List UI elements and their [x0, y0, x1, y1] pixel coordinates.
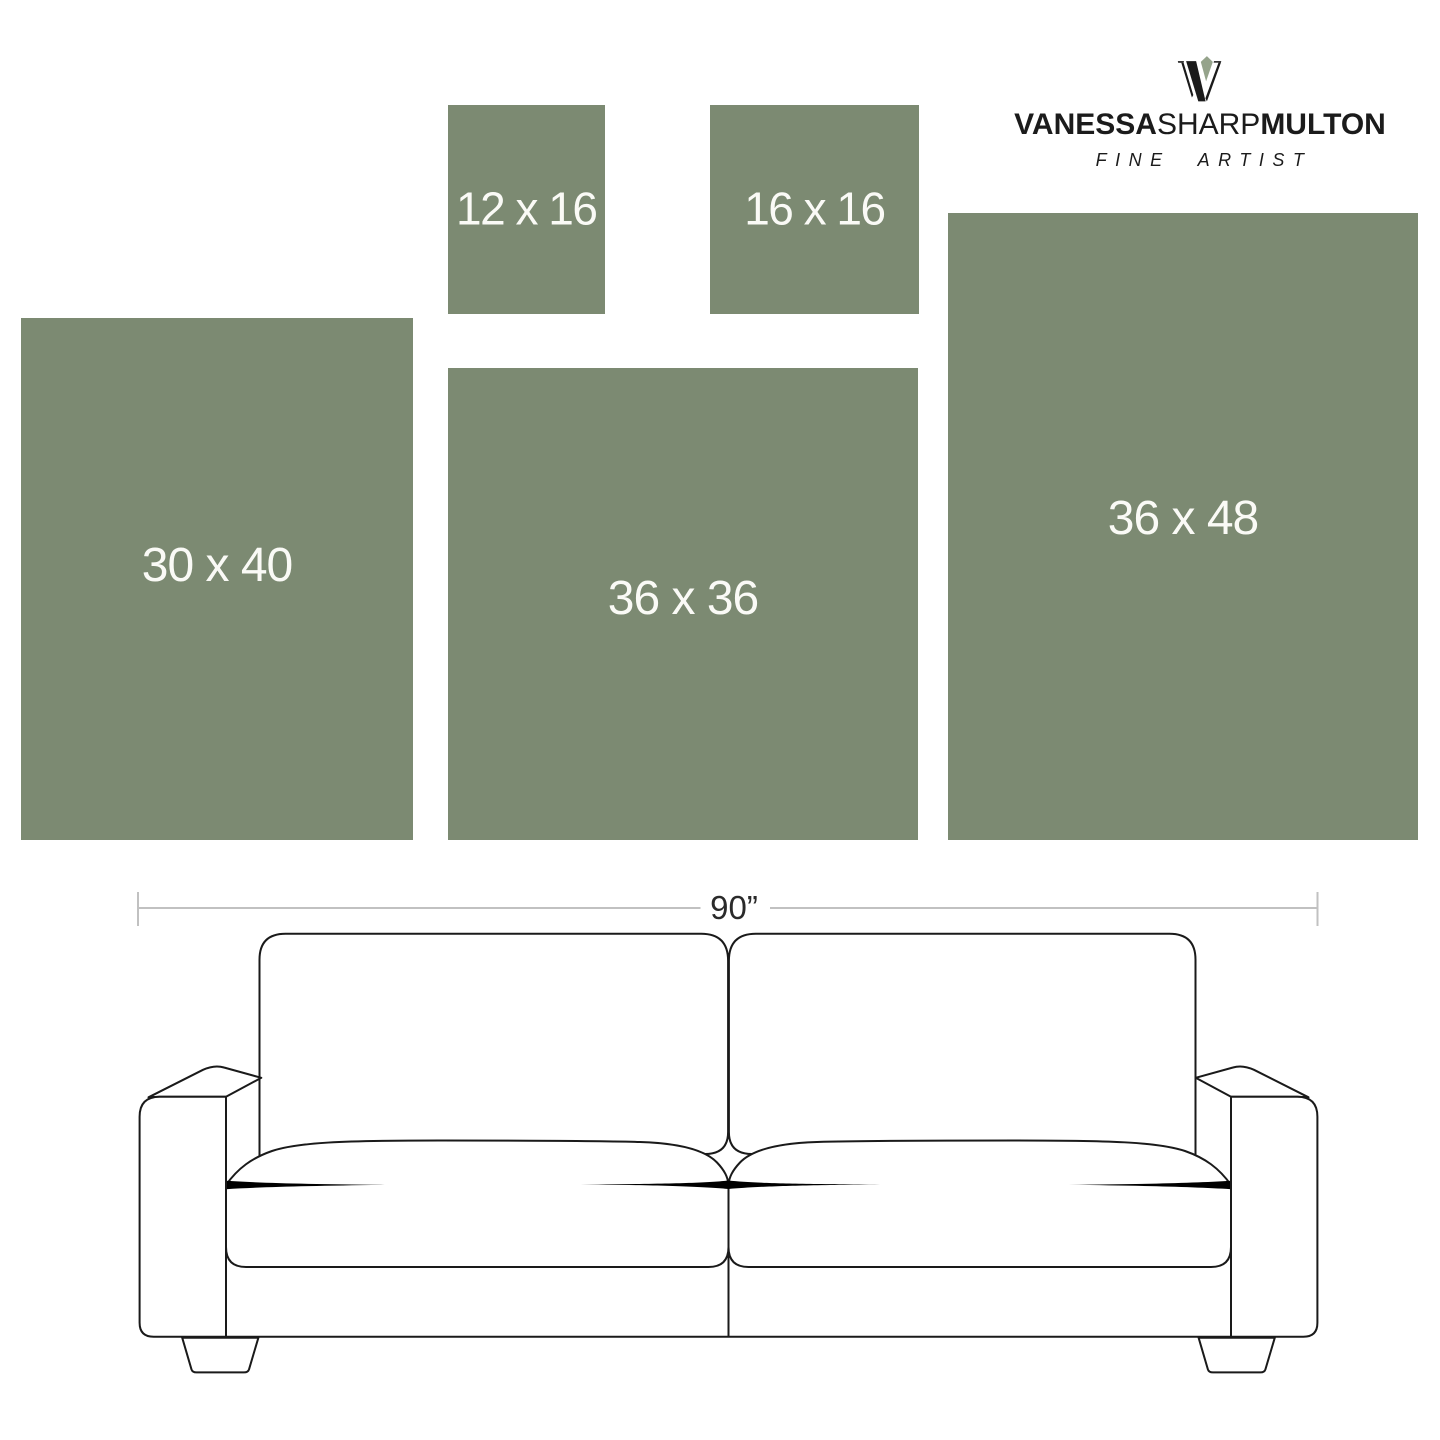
svg-text:90”: 90” — [710, 889, 758, 926]
